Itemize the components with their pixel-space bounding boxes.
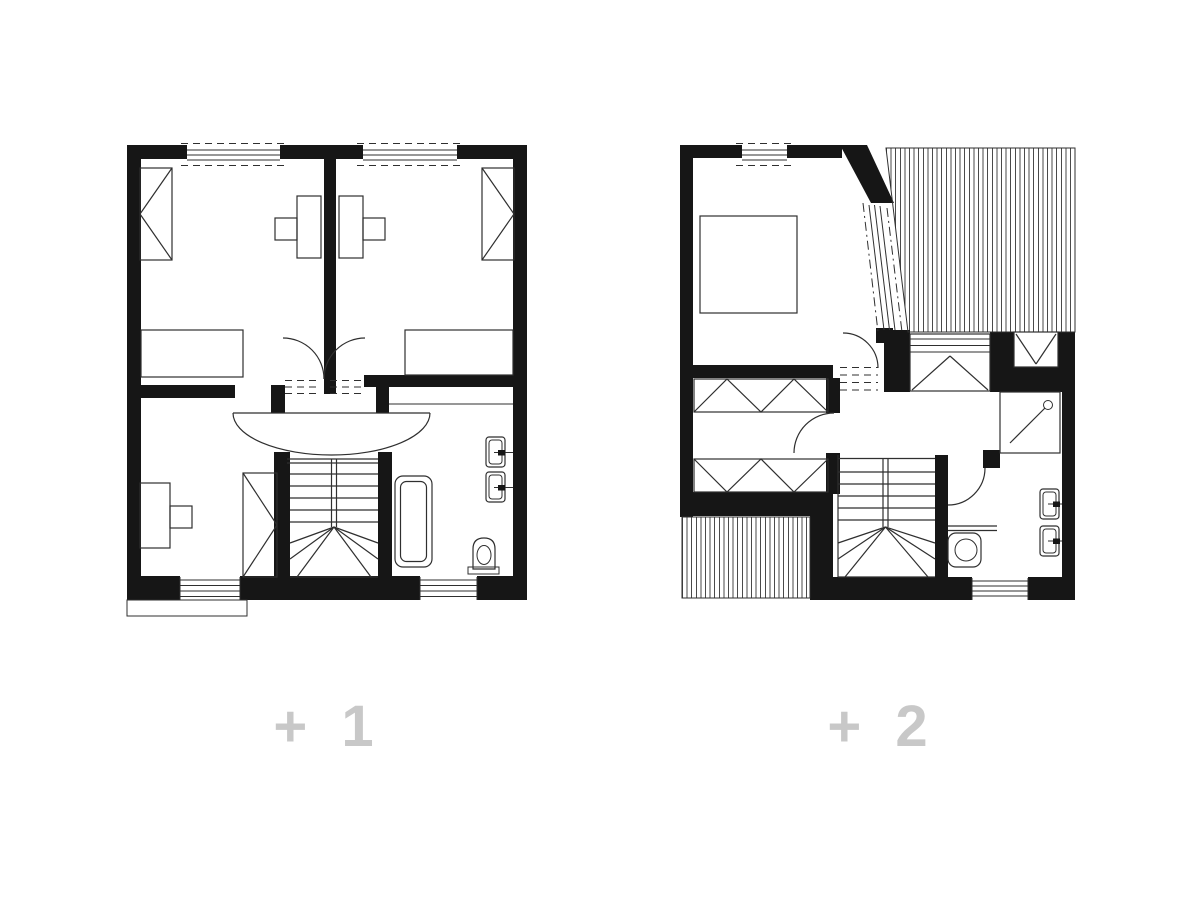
toilet-partition xyxy=(948,526,997,531)
hall-door-arcs xyxy=(233,413,430,455)
dressing-closet-top xyxy=(694,379,828,412)
floor-label-plus-2: + 2 xyxy=(802,692,962,762)
desk-study-room xyxy=(140,483,192,548)
window-sill xyxy=(127,600,247,616)
window-top-left xyxy=(181,144,286,166)
sink-4 xyxy=(1040,526,1062,556)
closet-under-roof xyxy=(910,334,990,391)
window-bottom-left xyxy=(180,577,240,600)
staircase-level-2 xyxy=(838,455,935,577)
toilet-level-1 xyxy=(468,538,499,574)
sink-2 xyxy=(486,472,513,502)
floor-plan-canvas: + 1 + 2 xyxy=(0,0,1200,901)
wardrobe-right xyxy=(482,168,514,260)
toilet-level-2 xyxy=(948,533,981,567)
staircase-level-1 xyxy=(287,459,378,577)
plan-level-2 xyxy=(680,144,1075,601)
sink-1 xyxy=(486,437,513,467)
window-bottom-level-2 xyxy=(972,578,1028,600)
desk-left-bedroom xyxy=(275,196,321,258)
bathtub xyxy=(395,476,432,567)
desk-right-bedroom xyxy=(339,196,385,258)
dressing-closet-bottom xyxy=(694,459,828,492)
bed-level-2 xyxy=(700,216,797,313)
door-arc-dressing xyxy=(794,413,834,453)
bedroom-door-level-2 xyxy=(840,333,878,390)
closet-study-room xyxy=(243,473,277,577)
terrace-area-outline xyxy=(682,517,810,598)
closet-corner xyxy=(1014,332,1058,367)
sink-3 xyxy=(1040,489,1062,519)
roof-area-outline xyxy=(886,148,1075,332)
bed-right xyxy=(405,330,513,375)
plan-level-1 xyxy=(127,144,527,617)
window-top-level-2 xyxy=(736,144,793,166)
floor-plans-drawing xyxy=(0,0,1200,901)
door-arc-bathroom xyxy=(948,468,985,505)
window-top-right xyxy=(357,144,463,166)
bed-left xyxy=(141,330,243,377)
door-arc-left-bedroom xyxy=(283,338,324,379)
window-bottom-right xyxy=(420,577,477,600)
shower xyxy=(1000,392,1060,453)
wardrobe-left xyxy=(140,168,172,260)
slanted-window xyxy=(863,203,902,332)
floor-label-plus-1: + 1 xyxy=(248,692,408,762)
